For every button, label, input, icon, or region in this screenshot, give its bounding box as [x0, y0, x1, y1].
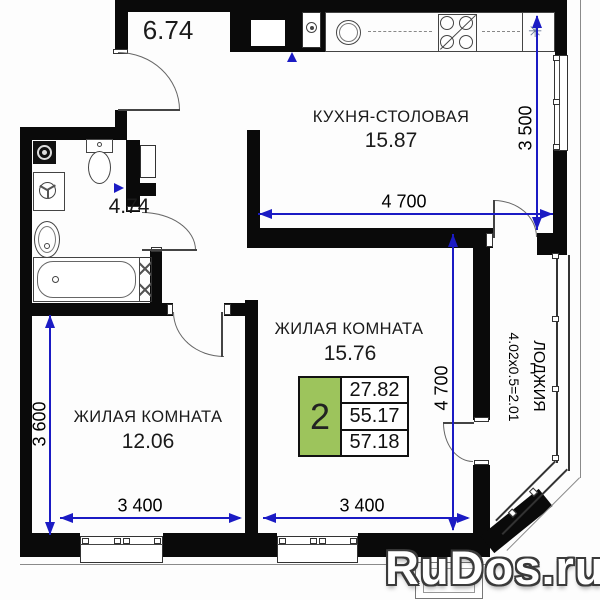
bottom-window-1 — [80, 536, 163, 563]
kitchen-window-mullion-mid — [553, 99, 560, 105]
dim-3400r-text: 3 400 — [339, 496, 384, 517]
entry-door-leaf — [118, 109, 180, 111]
loggia-glazing-outer — [568, 255, 570, 471]
loggia-glazing-inner — [556, 255, 558, 463]
bathroom-door-arc — [142, 212, 196, 250]
living1-name: ЖИЛАЯ КОМНАТА — [74, 408, 223, 427]
marker-arrow-up — [287, 52, 297, 62]
bottom-window-2-m1 — [279, 538, 286, 544]
dim-4700r-text: 4 700 — [432, 365, 453, 410]
wall-top — [115, 0, 567, 12]
dim-3400l-text: 3 400 — [117, 496, 162, 517]
jamb-kitchen-door — [486, 233, 493, 247]
wall-bottom-1 — [20, 533, 80, 557]
total-area-cell: 57.18 — [342, 431, 407, 455]
fan-dot — [42, 150, 47, 155]
loggia-name: ЛОДЖИЯ — [529, 340, 547, 411]
wall-entry-stub-outer — [115, 0, 128, 52]
vent-shaft — [251, 20, 285, 46]
wall-right-top — [555, 0, 567, 57]
toilet-button — [97, 142, 102, 147]
counter-divider — [522, 12, 523, 52]
toilet-bowl — [88, 151, 111, 184]
dim-4700t-text: 4 700 — [381, 192, 426, 213]
kitchen-area: 15.87 — [365, 129, 418, 153]
bathroom-door-leaf — [142, 249, 197, 251]
drum-spoke-1 — [47, 190, 49, 199]
marker-arrow-right — [114, 183, 124, 193]
loggia-door-arc — [443, 423, 473, 462]
bottom-window-1-m3 — [123, 538, 130, 544]
bottom-window-2-line — [277, 544, 358, 545]
area-no-loggia-cell: 55.17 — [342, 404, 407, 430]
loggia-door-leaf — [443, 422, 474, 424]
dim-4700r-arrow-up — [448, 234, 458, 247]
dim-3400r-line — [263, 517, 468, 519]
dim-4700t-arrow-right — [540, 209, 553, 219]
jamb-loggia-bottom — [474, 460, 489, 465]
jamb-room1-right — [224, 304, 231, 315]
loggia-mullion-2 — [552, 316, 559, 322]
loggia-size: 4.02х0.5=2.01 — [506, 332, 522, 421]
bottom-window-2-m4 — [350, 538, 357, 544]
bathtub-drain — [52, 276, 59, 283]
dim-3400l-arrow-right — [229, 513, 242, 523]
bottom-window-1-line — [80, 544, 163, 545]
wall-loggia-divider-top — [473, 248, 490, 420]
bathroom-shaft — [140, 145, 156, 178]
living-area-cell: 27.82 — [342, 378, 407, 404]
sink-faucet — [44, 243, 50, 249]
hatched-duct — [138, 257, 152, 302]
dim-3500-arrow-up — [532, 15, 542, 28]
bottom-window-2-m2 — [310, 538, 317, 544]
counter-dash-2 — [482, 31, 520, 32]
bathroom-area-label: 4.74 — [109, 195, 150, 219]
loggia-mullion-3 — [552, 386, 559, 392]
wall-loggia-divider-bottom — [473, 465, 490, 533]
wall-bottom-2 — [163, 533, 277, 557]
bottom-window-2-m3 — [319, 538, 326, 544]
kitchen-sink-inner — [339, 23, 358, 42]
dim-3600-arrow-down — [45, 522, 55, 535]
wall-hall-kitchen — [247, 130, 260, 240]
entry-door-arc — [118, 52, 180, 110]
dim-3400l-line — [60, 517, 240, 519]
kitchen-loggia-door-arc — [494, 200, 537, 237]
wall-left — [20, 127, 32, 545]
kitchen-window-mullion-bot — [553, 144, 560, 150]
bottom-window-1-m1 — [82, 538, 89, 544]
dim-4700t-arrow-left — [259, 209, 272, 219]
living2-area: 15.76 — [324, 342, 377, 366]
watermark: RuDos.ru — [385, 540, 600, 595]
duct-dot — [310, 26, 314, 30]
kitchen-name: КУХНЯ-СТОЛОВАЯ — [313, 108, 470, 127]
dim-3400l-arrow-left — [60, 513, 73, 523]
living2-name: ЖИЛАЯ КОМНАТА — [275, 320, 424, 339]
stove-burner-4 — [459, 35, 473, 49]
wall-room1-top-left — [20, 303, 173, 316]
dim-3500-text: 3 500 — [516, 105, 537, 150]
bottom-window-1-m4 — [154, 538, 161, 544]
wall-between-rooms — [245, 300, 258, 533]
room1-door-arc — [173, 312, 224, 357]
facade-line-right — [580, 0, 581, 478]
stove-burner-1 — [440, 16, 454, 30]
dim-4700t-line — [258, 213, 553, 215]
room1-door-leaf — [221, 312, 223, 357]
hall-area-label: 6.74 — [143, 15, 194, 46]
loggia-glazing-diag-outer — [502, 469, 568, 535]
bottom-window-2 — [277, 536, 358, 563]
dim-3600-text: 3 600 — [30, 401, 51, 446]
dim-3400r-arrow-left — [263, 513, 276, 523]
kitchen-window-mullion-top — [553, 55, 560, 61]
bottom-window-1-m2 — [114, 538, 121, 544]
kitchen-loggia-door-leaf — [493, 200, 495, 238]
dim-3400r-arrow-right — [457, 513, 470, 523]
counter-dash-1 — [368, 31, 432, 32]
rooms-count-cell: 2 — [300, 378, 342, 455]
loggia-mullion-1 — [552, 253, 559, 259]
floor-plan: ✳ 3 500 4 700 4 700 3 600 3 400 3 400 — [0, 0, 600, 600]
dim-3600-arrow-up — [45, 315, 55, 328]
living1-area: 12.06 — [122, 430, 175, 454]
apartment-info-table: 2 27.82 55.17 57.18 — [298, 376, 409, 457]
wall-right-mid — [553, 150, 567, 238]
jamb-loggia-top — [474, 417, 489, 422]
loggia-mullion-4 — [552, 455, 559, 461]
